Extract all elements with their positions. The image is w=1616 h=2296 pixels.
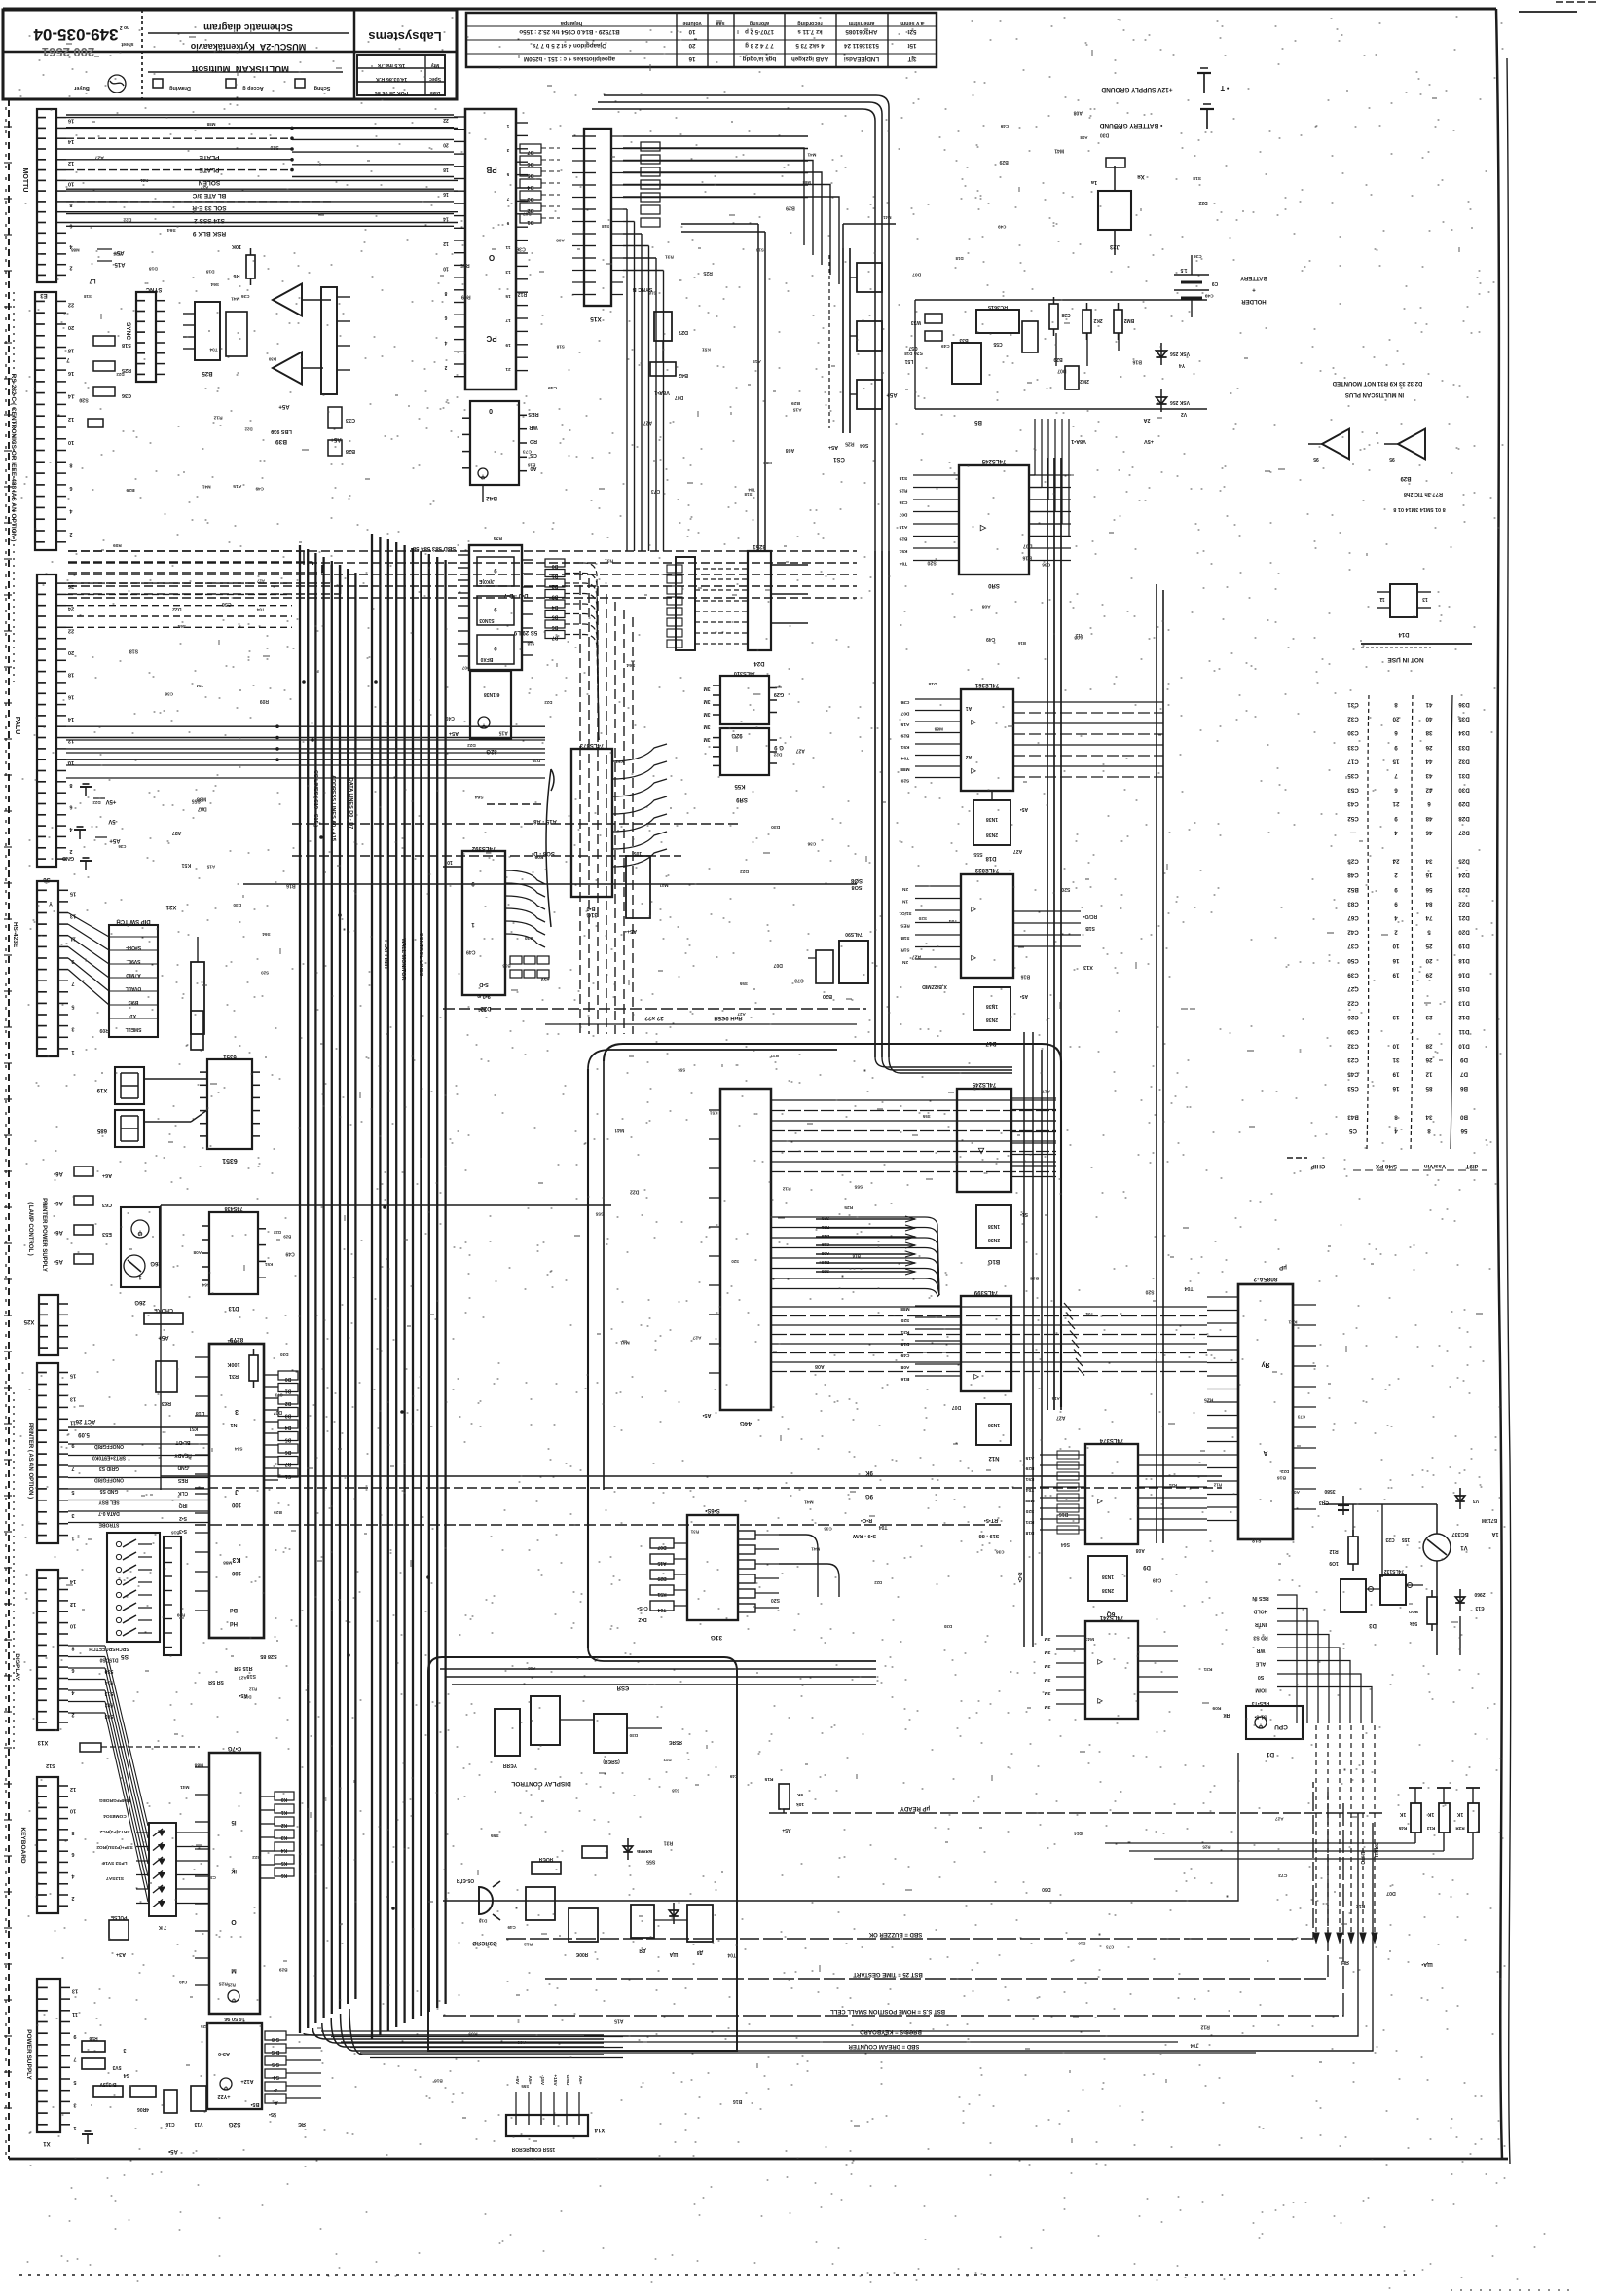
svg-text:C55: C55 [993,341,1002,347]
svg-text:8: 8 [69,462,72,467]
svg-text:K1: K1 [281,1809,288,1815]
svg-text:74LS241: 74LS241 [1099,1614,1123,1620]
svg-text:S18: S18 [247,1673,256,1679]
svg-text:B16: B16 [733,2098,743,2104]
svg-text:S4•: S4• [272,2074,279,2080]
svg-text:◁: ◁ [971,906,977,912]
svg-text:1: 1 [506,124,509,129]
svg-text:D3: D3 [527,196,533,202]
svg-text:6: 6 [69,804,72,810]
svg-text:D18: D18 [955,256,964,261]
svg-text:CONTROL LINES: CONTROL LINES [418,933,423,977]
svg-text:22: 22 [68,627,74,633]
svg-text:Ø3ЯЄЯØ: Ø3ЯЄЯØ [472,1940,497,1945]
svg-text:C36: C36 [899,500,907,505]
svg-text:S18: S18 [755,248,763,253]
svg-text:SYNC: SYNC [125,322,131,340]
svg-text:D18: D18 [1114,125,1122,130]
svg-text:ЩА: ЩА [669,1951,678,1957]
svg-text:25: 25 [1425,943,1432,949]
svg-text:◁: ◁ [979,524,987,533]
svg-text:D3: D3 [1369,1622,1377,1628]
svg-text:B29: B29 [657,1575,666,1581]
svg-text:D22: D22 [92,800,101,805]
svg-text:A5+: A5+ [109,837,121,843]
svg-text:3: 3 [71,1512,74,1518]
svg-text:L51: L51 [904,358,913,364]
svg-text:D18: D18 [904,352,913,356]
svg-text:S18: S18 [648,291,656,296]
svg-text:X13: X13 [1083,964,1093,970]
svg-text:D24: D24 [753,660,765,666]
svg-text:D36: D36 [1458,701,1470,708]
svg-text:C50: C50 [1347,957,1359,964]
svg-text:1О9: 1О9 [1329,1560,1339,1566]
svg-text:10: 10 [68,180,74,186]
svg-text:13: 13 [1392,1014,1399,1020]
svg-text:A08: A08 [1291,1490,1300,1495]
svg-text:18: 18 [443,167,449,172]
svg-text:C32: C32 [1347,1042,1359,1049]
svg-text:C49: C49 [998,225,1007,230]
svg-text:92G: 92G [731,732,743,738]
svg-text:S•6S•: S•6S• [705,1507,720,1513]
svg-text:3M: 3M [704,711,711,717]
svg-text:BЯЄS.S = KEYBOARD: BЯЄS.S = KEYBOARD [859,2028,921,2034]
svg-text:R3Я: R3Я [1455,1826,1464,1831]
svg-text:RES: RES [177,1477,188,1483]
svg-text:D30: D30 [1458,787,1470,794]
svg-text:74LS373: 74LS373 [579,742,604,748]
svg-text:1707-5 2 p: 1707-5 2 p [745,28,774,35]
svg-text:K2: K2 [281,1822,288,1828]
svg-text:3M: 3M [1045,1677,1051,1683]
svg-text:21: 21 [505,367,511,372]
svg-text:A5+: A5+ [158,1334,169,1340]
svg-text:S55: S55 [678,1068,685,1073]
svg-text:D30: D30 [524,935,533,941]
svg-text:-5V: -5V [108,818,117,824]
svg-text:ALE: ALE [1255,1661,1266,1667]
svg-text:D•0 - D•7: D•0 - D•7 [503,592,529,598]
svg-text:D22: D22 [467,742,476,748]
svg-text:G 9: G 9 [774,744,784,750]
svg-text:V1: V1 [1460,1544,1468,1550]
svg-text:M41: M41 [807,153,816,158]
svg-text:◁: ◁ [971,767,977,774]
svg-text:105: 105 [634,850,643,856]
svg-text:D18: D18 [985,855,997,861]
svg-text:R6: R6 [233,273,239,278]
svg-text:D30: D30 [1042,1886,1051,1892]
svg-text:BL•DT: BL•DT [175,1439,190,1445]
svg-text:51313611 24: 51313611 24 [844,42,879,49]
svg-text:4R06: 4R06 [137,2106,149,2112]
svg-text:D10: D10 [1458,1042,1470,1049]
svg-text:74LS392: 74LS392 [471,845,496,851]
svg-text:ЯЄ: ЯЄ [298,2121,306,2127]
svg-text:R12: R12 [1075,633,1083,638]
svg-text:M41: M41 [1084,1636,1094,1642]
svg-text:D1: D1 [1266,1751,1274,1758]
svg-text:sheet: sheet [121,41,133,47]
svg-text:A08: A08 [1135,1547,1144,1553]
svg-text:DISPLAY: DISPLAY [14,1653,20,1681]
svg-text:9: 9 [1394,744,1398,751]
svg-text:C49: C49 [179,1981,188,1985]
svg-text:RT•5•: RT•5• [984,1517,998,1523]
svg-text:SRCHSRCFETCH: SRCHSRCFETCH [89,1646,129,1651]
svg-text:C73: C73 [1297,1415,1305,1420]
svg-text:C52: C52 [1347,815,1359,822]
svg-text:CHIP: CHIP [1311,1163,1326,1169]
svg-text:RC3615: RC3615 [988,304,1008,310]
svg-text:B16: B16 [1132,359,1142,365]
svg-text:S#OFF: S#OFF [126,944,141,950]
svg-text:M88: M88 [900,766,910,772]
svg-text:2N38: 2N38 [1102,1587,1114,1593]
svg-text:14.03.86 R.K: 14.03.86 R.K [376,76,407,82]
svg-text:X25: X25 [23,1318,34,1324]
svg-text:S64: S64 [475,795,484,800]
svg-text:R25: R25 [1204,1397,1213,1403]
svg-text:φ: φ [1258,1723,1263,1729]
svg-text:D18: D18 [196,1410,205,1416]
svg-text:RES IN: RES IN [1252,1595,1269,1601]
svg-text:μP READY: μP READY [900,1805,930,1811]
svg-text:D22: D22 [630,1189,639,1195]
svg-text:A15: A15 [899,524,907,530]
svg-text:R25: R25 [703,270,713,276]
svg-text:HOLD: HOLD [1253,1609,1267,1614]
svg-text:74LS245: 74LS245 [972,1081,996,1087]
svg-text:5.09: 5.09 [78,1431,90,1437]
svg-text:O: O [489,253,495,262]
svg-text:S5: S5 [121,1653,129,1660]
svg-text:R31: R31 [1203,1666,1212,1672]
svg-text:D07: D07 [899,512,907,518]
svg-text:M41: M41 [883,215,892,220]
svg-text:R12: R12 [518,291,528,297]
svg-text:S55: S55 [595,1211,604,1217]
svg-text:ameristrm: ameristrm [849,20,875,26]
svg-text:A5•: A5• [1020,993,1028,999]
svg-text:SOLEN: SOLEN [199,179,221,186]
svg-text:K51: K51 [900,744,909,750]
svg-text:SV90..: SV90.. [126,958,141,964]
svg-text:R12: R12 [1213,1482,1222,1487]
svg-text:R25: R25 [844,1204,853,1210]
svg-text:C63: C63 [102,1202,112,1207]
svg-text:φ: φ [232,1997,236,2003]
svg-text:S64: S64 [1074,1830,1083,1835]
svg-text:D7: D7 [527,149,533,155]
svg-text:AH3061085: AH3061085 [845,28,878,35]
svg-text:B29: B29 [999,159,1008,165]
svg-text:D4: D4 [552,604,559,610]
svg-text:RC/O•: RC/O• [1083,913,1098,919]
svg-text:B20: B20 [823,993,832,999]
svg-text:C49: C49 [1204,292,1213,298]
svg-text:1N38: 1N38 [1102,1574,1114,1579]
svg-text:56: 56 [1425,886,1432,893]
svg-text:M41: M41 [1054,148,1064,154]
svg-text:2960: 2960 [1474,1591,1485,1597]
svg-text:A08: A08 [1080,135,1088,140]
svg-text:+5V: +5V [540,976,550,981]
svg-text:VSK 256: VSK 256 [1170,399,1190,405]
svg-text:3: 3 [235,1408,239,1415]
svg-text:S2G: S2G [228,2121,240,2128]
svg-text:K51: K51 [899,548,907,554]
svg-text:S20: S20 [79,396,88,402]
svg-text:READY: READY [174,1452,192,1458]
svg-text:B16: B16 [527,463,535,468]
svg-text:R12: R12 [1329,1548,1338,1554]
svg-text:12: 12 [70,1786,76,1792]
svg-text:S20: S20 [900,778,909,784]
svg-text:1N38: 1N38 [988,1223,1000,1229]
svg-text:M: M [231,1967,236,1974]
svg-text:B29: B29 [786,205,795,211]
svg-text:S18: S18 [1193,175,1201,181]
svg-text:A08: A08 [815,1363,825,1369]
svg-text:D22: D22 [116,372,125,377]
svg-text:Mty: Mty [430,62,439,68]
svg-text:100K: 100K [227,1361,239,1367]
svg-text:D07: D07 [773,962,782,968]
svg-text:A5+: A5+ [330,436,342,442]
svg-text:K0: K0 [281,1796,288,1802]
svg-text:D27: D27 [1458,829,1470,835]
svg-text:5K: 5K [796,1792,803,1797]
svg-text:D6: D6 [285,1449,292,1455]
svg-text:1K: 1K [1456,1811,1463,1817]
svg-text:8: 8 [69,202,72,207]
svg-text:14: 14 [443,216,449,222]
svg-text:IO/M: IO/M [1255,1687,1266,1693]
svg-text:11: 11 [72,2011,78,2017]
svg-text:10k: 10k [796,1801,804,1807]
svg-text:S12: S12 [46,1762,55,1768]
svg-text:S18: S18 [1252,1537,1261,1542]
svg-text:K4: K4 [281,1847,288,1853]
svg-text:Y4: Y4 [1179,362,1185,368]
svg-text:V2: V2 [1181,411,1187,417]
svg-text:D0: D0 [285,1376,292,1382]
svg-text:C33: C33 [346,417,355,423]
svg-text:2? x??: 2? x?? [644,1015,664,1020]
svg-text:18: 18 [68,672,74,678]
svg-text:A08: A08 [556,239,565,243]
svg-text:ЄSЯ: ЄSЯ [617,1685,630,1690]
svg-text:R31: R31 [140,178,149,183]
svg-text:recording: recording [797,20,822,26]
svg-text:6: 6 [69,485,72,491]
svg-text:74S438: 74S438 [225,1205,243,1211]
svg-text:16: 16 [68,118,74,124]
svg-text:A3-0: A3-0 [218,2051,230,2056]
svg-text:D6: D6 [552,624,559,630]
svg-text:D12: D12 [1458,1014,1470,1020]
svg-text:A6•: A6• [54,1229,63,1235]
svg-text:A27: A27 [1056,1415,1066,1421]
svg-text:5: 5 [1427,929,1431,936]
svg-text:85: 85 [1425,1085,1432,1092]
svg-text:K55: K55 [734,783,746,789]
svg-text:C16: C16 [165,2121,174,2127]
svg-text:◁: ◁ [971,719,977,725]
svg-text:14: 14 [67,716,74,722]
svg-text:D29: D29 [1458,800,1470,807]
svg-text:C49: C49 [729,1774,738,1779]
svg-text:+12V SUPPLY GROUND: +12V SUPPLY GROUND [1101,86,1172,93]
svg-text:10: 10 [68,439,74,445]
svg-text:1N38: 1N38 [988,1422,1000,1427]
svg-text:WR: WR [1256,1648,1265,1653]
svg-text:S55: S55 [192,798,201,804]
svg-text:M88: M88 [71,247,80,252]
svg-text:A15: A15 [792,406,801,412]
svg-text:4: 4 [1394,1128,1398,1134]
svg-text:A27: A27 [1013,848,1022,854]
svg-text:26: 26 [1425,744,1432,751]
svg-text:16: 16 [443,191,449,197]
svg-text:D7: D7 [1459,1071,1467,1078]
svg-text:C49: C49 [255,487,264,492]
svg-text:C43: C43 [1347,800,1359,807]
svg-text:15SЯ ЄОЩЯЄЯОЯ: 15SЯ ЄОЩЯЄЯОЯ [511,2146,555,2152]
svg-text:R09: R09 [461,293,471,299]
svg-text:◁: ◁ [1097,1498,1104,1504]
svg-text:• T: • T [1220,84,1229,91]
svg-text:RSK BLK 9: RSK BLK 9 [192,230,226,237]
svg-text:3M: 3M [1045,1649,1051,1655]
svg-text:19: 19 [1392,1071,1399,1078]
svg-text:1.5: 1.5 [1180,267,1187,273]
svg-text:B16: B16 [434,2077,443,2083]
svg-text:K51: K51 [710,1111,718,1116]
svg-text:X21: X21 [165,904,176,909]
svg-text:B29: B29 [279,1968,288,1973]
svg-text:6: 6 [71,1851,74,1857]
svg-text:S20: S20 [900,1317,909,1323]
svg-text:D22: D22 [1280,1469,1289,1474]
svg-text:D18: D18 [1025,1530,1034,1536]
svg-text:X,B/2ZMID: X,B/2ZMID [922,983,947,989]
svg-text:SMELL: SMELL [126,1026,142,1032]
svg-text:Drawing: Drawing [169,85,191,91]
svg-text:74LS374: 74LS374 [1099,1437,1123,1443]
svg-text:7: 7 [73,2056,76,2062]
svg-text:S55: S55 [739,981,748,986]
svg-text:Bd: Bd [230,1607,238,1612]
svg-text:HS-423E: HS-423E [12,922,18,948]
svg-text:SRT3(P3)RC2: SRT3(P3)RC2 [99,1829,129,1834]
svg-text:M41: M41 [811,1546,820,1551]
svg-text:ЩА•: ЩА• [1421,1961,1433,1967]
svg-text:9: 9 [73,2033,76,2039]
svg-text:10: 10 [443,265,449,271]
svg-text:AAB igzkgeh: AAB igzkgeh [791,56,828,62]
svg-text:M88: M88 [223,1559,233,1565]
svg-text:B29: B29 [1400,475,1412,481]
svg-text:5: 5 [506,172,509,177]
svg-text:ЯН: ЯН [1341,1959,1349,1965]
svg-text:M88: M88 [206,122,215,127]
svg-text:B42: B42 [486,495,497,501]
svg-text:C36: C36 [996,1550,1005,1555]
svg-text:3M: 3M [1045,1690,1051,1696]
svg-text:T04: T04 [196,684,203,688]
svg-text:◁: ◁ [973,1373,980,1380]
svg-text:16.5 mø.7k: 16.5 mø.7k [377,62,405,68]
svg-text:2: 2 [1394,871,1398,878]
svg-text:S55: S55 [521,2084,529,2089]
svg-text:31G: 31G [586,911,598,917]
svg-text:V8A•1: V8A•1 [1071,438,1086,444]
svg-text:D22: D22 [172,606,181,611]
svg-text:B29: B29 [791,400,800,406]
svg-text:8251: 8251 [753,543,766,549]
svg-text:S20: S20 [1145,1288,1154,1294]
svg-text:A08: A08 [981,604,990,610]
svg-text:N12: N12 [988,1455,1000,1461]
svg-text:23: 23 [1425,1014,1432,1020]
svg-text:42: 42 [1425,787,1432,794]
svg-text:D33: D33 [1458,744,1470,751]
svg-text:φ: φ [481,723,486,729]
svg-text:D22: D22 [740,869,749,874]
svg-text:16: 16 [1425,871,1432,878]
svg-text:X1: X1 [43,2140,51,2146]
svg-text:D07: D07 [523,212,532,217]
svg-text:WALL MONITOR: WALL MONITOR [400,939,406,981]
svg-text:μP: μP [1279,1264,1287,1270]
svg-text:hejainpä: hejainpä [560,20,582,26]
svg-text:C49: C49 [1153,1576,1162,1582]
svg-text:6: 6 [444,315,447,320]
svg-text:dI9T: dI9T [1465,1163,1478,1169]
svg-text:349-035-04: 349-035-04 [33,25,119,44]
svg-text:PRINTER ( AS AN OPTION ): PRINTER ( AS AN OPTION ) [27,1423,33,1499]
svg-text:T04: T04 [901,756,910,761]
svg-text:4: 4 [444,340,447,346]
svg-text:2: 2 [71,1895,74,1901]
svg-text:φ: φ [137,1230,142,1237]
svg-text:BM2: BM2 [1124,317,1135,323]
svg-text:C25: C25 [1347,858,1359,865]
svg-text:S64: S64 [167,227,176,233]
svg-text:D22: D22 [773,751,782,757]
svg-text:D13: D13 [228,1305,239,1311]
svg-text:10: 10 [70,1807,76,1813]
svg-text:D9: D9 [1459,1056,1467,1063]
svg-text:B29: B29 [126,487,134,493]
svg-text:A•: A• [273,2099,278,2105]
svg-text:8: 8 [1427,1128,1431,1134]
svg-text:M41: M41 [659,883,668,888]
svg-text:C49: C49 [1000,124,1009,129]
svg-text:A5+: A5+ [278,403,290,409]
svg-text:C45: C45 [1347,1071,1359,1078]
svg-text:3M: 3M [1045,1663,1051,1669]
svg-text:I5: I5 [231,1819,237,1825]
svg-text:G29: G29 [774,691,784,697]
svg-text:△: △ [977,1147,985,1156]
svg-text:SО8: SО8 [851,884,862,890]
svg-text:D22: D22 [663,1758,672,1762]
